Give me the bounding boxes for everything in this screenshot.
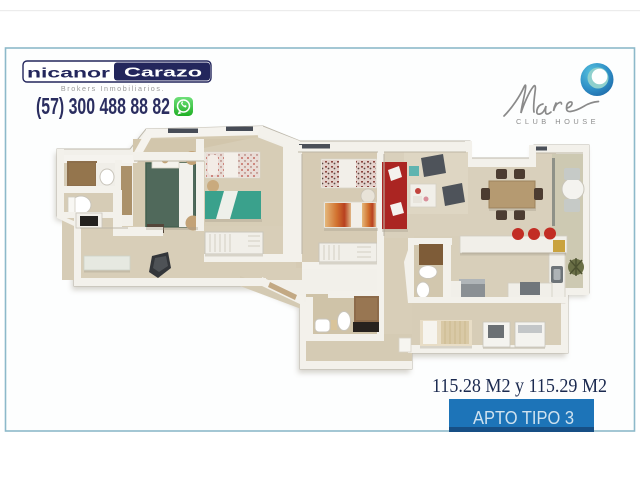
svg-text:APTO TIPO 3: APTO TIPO 3: [473, 408, 574, 428]
svg-text:nicanor: nicanor: [27, 65, 111, 81]
svg-text:Carazo: Carazo: [124, 66, 203, 80]
svg-text:(57) 300 488 88 82: (57) 300 488 88 82: [36, 93, 170, 119]
svg-text:Brokers Inmobiliarios.: Brokers Inmobiliarios.: [61, 84, 165, 93]
svg-text:CLUB HOUSE: CLUB HOUSE: [516, 117, 599, 126]
svg-text:115.28 M2 y 115.29 M2: 115.28 M2 y 115.29 M2: [432, 375, 607, 397]
